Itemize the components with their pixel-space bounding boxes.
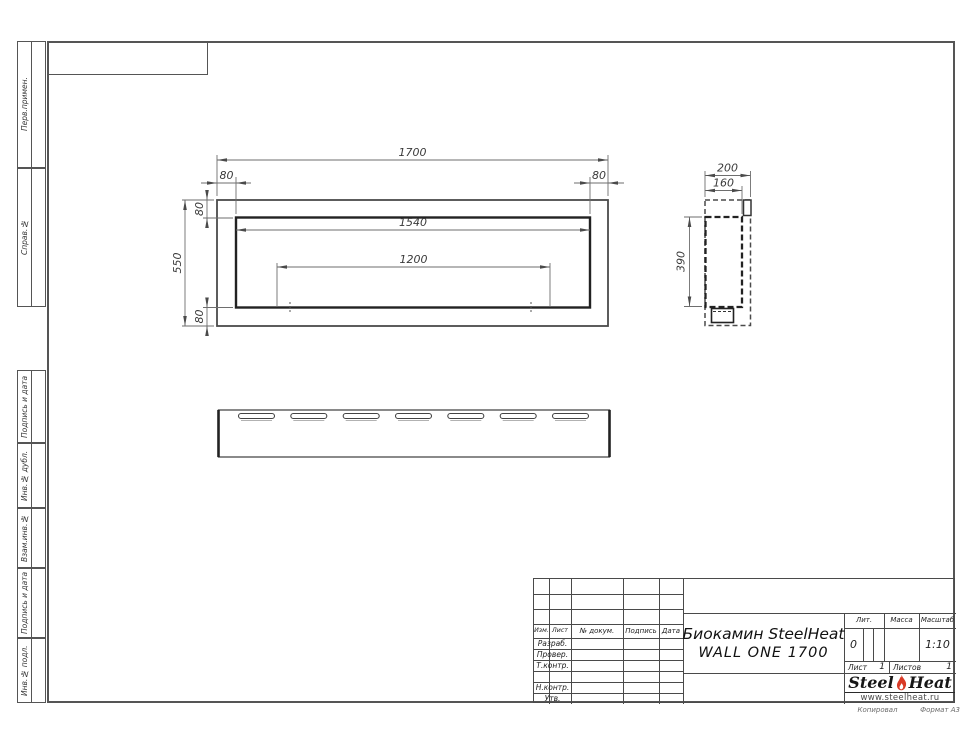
margin-divider: [31, 444, 32, 507]
sheets-cell: Листов 1: [889, 661, 956, 673]
document-title-line1: Биокамин SteelHeat: [683, 625, 845, 643]
row-tkontr: Т.контр.: [534, 660, 571, 671]
margin-divider: [31, 169, 32, 306]
mass-label: Масса: [884, 613, 919, 628]
sheets-total: 1: [946, 662, 952, 672]
col-izm: Изм.: [533, 624, 550, 638]
margin-label: Инв.№ дубл.: [18, 444, 31, 507]
margin-divider: [31, 569, 32, 637]
row-utv: Утв.: [534, 693, 571, 704]
document-title-line2: WALL ONE 1700: [698, 645, 828, 661]
logo-wordmark: Steel Heat: [845, 674, 954, 693]
format-label: Формат А3: [905, 706, 970, 714]
company-logo: Steel Heat www.steelheat.ru: [844, 673, 956, 704]
drawing-sheet: { "sheet": { "copied_label": "Копировал"…: [0, 0, 970, 749]
margin-divider: [31, 639, 32, 702]
sheet-number: 1: [879, 662, 885, 672]
margin-divider: [31, 42, 32, 167]
margin-section-inv-podl: Инв.№ подл.: [17, 638, 46, 703]
logo-word-heat: Heat: [909, 675, 952, 691]
lit-label: Лит.: [844, 613, 884, 628]
row-prover: Провер.: [534, 649, 571, 660]
margin-section-podpis-data-2: Подпись и дата: [17, 568, 46, 638]
margin-section-vzam-inv: Взам.инв.№: [17, 508, 46, 568]
copied-label: Копировал: [840, 706, 915, 714]
col-data: Дата: [659, 624, 683, 638]
flame-icon: [895, 674, 908, 691]
sheet-label: Лист: [848, 663, 867, 672]
col-podpis: Подпись: [623, 624, 659, 638]
row-nkontr: Н.контр.: [534, 682, 571, 693]
top-left-stamp-cell: [47, 41, 208, 75]
logo-url: www.steelheat.ru: [861, 693, 940, 703]
row-razrab: Разраб.: [534, 638, 571, 649]
margin-label: Подпись и дата: [18, 569, 31, 637]
sheet-cell: Лист 1: [844, 661, 889, 673]
margin-label: Инв.№ подл.: [18, 639, 31, 702]
margin-section-sprav-no: Справ.№: [17, 168, 46, 307]
margin-label: Перв.примен.: [18, 42, 31, 167]
margin-label: Подпись и дата: [18, 371, 31, 442]
document-title: Биокамин SteelHeat WALL ONE 1700: [683, 613, 844, 673]
margin-label: Справ.№: [18, 169, 31, 306]
margin-divider: [31, 509, 32, 567]
title-block: Изм. Лист № докум. Подпись Дата Разраб. …: [533, 578, 955, 703]
logo-word-steel: Steel: [848, 675, 893, 691]
margin-section-perv-primen: Перв.примен.: [17, 41, 46, 168]
scale-label: Масштаб: [919, 613, 956, 628]
row-blank: [534, 671, 571, 682]
col-no-dokum: № докум.: [571, 624, 623, 638]
lit-value: 0: [844, 628, 863, 661]
margin-label: Взам.инв.№: [18, 509, 31, 567]
margin-section-podpis-data-1: Подпись и дата: [17, 370, 46, 443]
margin-section-inv-dubl: Инв.№ дубл.: [17, 443, 46, 508]
col-list: Лист: [549, 624, 571, 638]
scale-value: 1:10: [919, 628, 956, 661]
sheets-label: Листов: [893, 663, 921, 672]
margin-divider: [31, 371, 32, 442]
